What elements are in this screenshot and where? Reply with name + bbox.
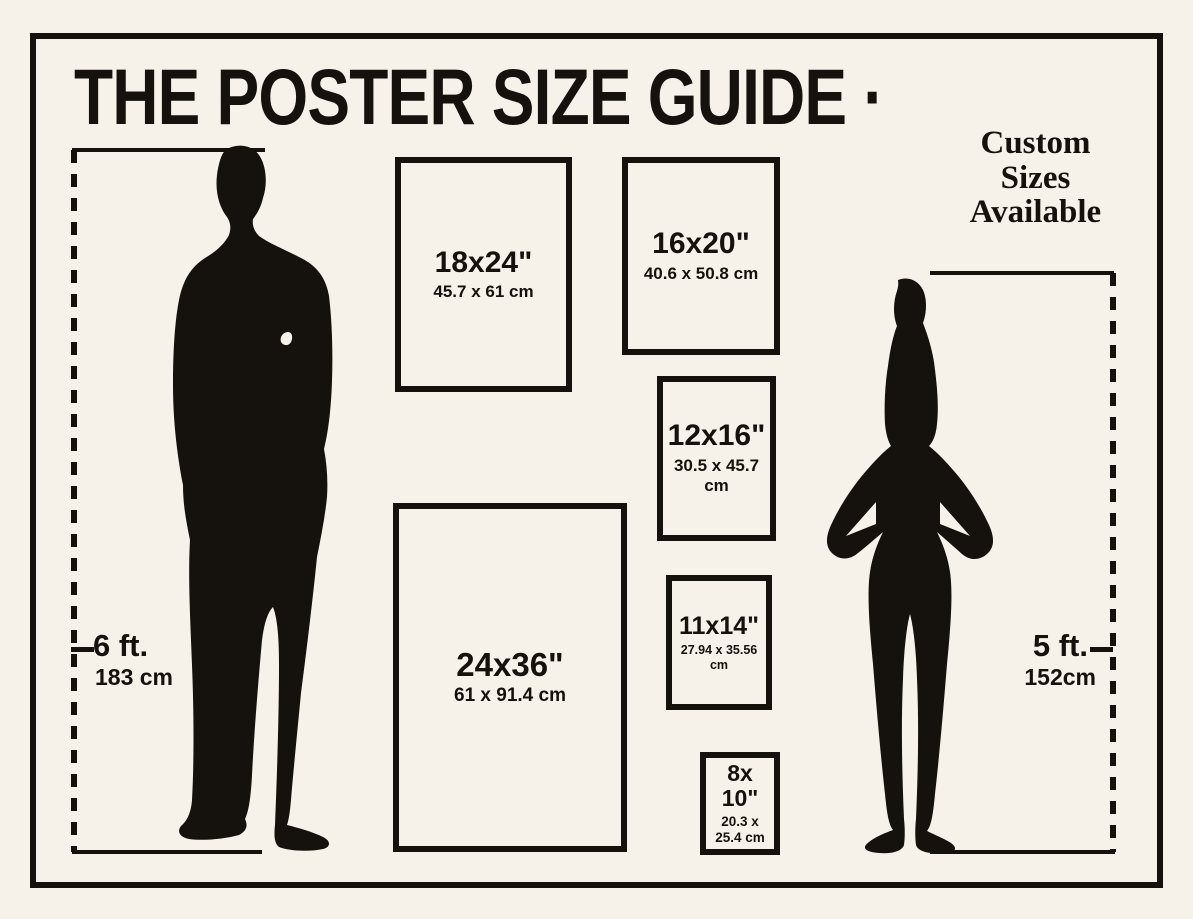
poster-metric-label: 30.5 x 45.7 cm xyxy=(663,456,770,497)
woman-silhouette xyxy=(812,274,1004,854)
poster-box-11x14: 11x14" 27.94 x 35.56 cm xyxy=(666,575,772,710)
poster-size-label: 11x14" xyxy=(679,613,759,640)
poster-metric-label: 27.94 x 35.56 cm xyxy=(672,643,766,673)
poster-size-label: 8x 10" xyxy=(722,761,759,811)
poster-size-label: 24x36" xyxy=(456,647,563,683)
poster-size-label: 18x24" xyxy=(435,247,533,279)
right-height-dashed-line xyxy=(1110,273,1116,852)
poster-box-16x20: 16x20" 40.6 x 50.8 cm xyxy=(622,157,780,355)
woman-silhouette-icon xyxy=(812,274,1004,854)
poster-box-12x16: 12x16" 30.5 x 45.7 cm xyxy=(657,376,776,541)
poster-metric-label: 45.7 x 61 cm xyxy=(433,282,533,302)
poster-box-8x10: 8x 10" 20.3 x 25.4 cm xyxy=(700,752,780,855)
page-title: THE POSTER SIZE GUIDE · xyxy=(74,57,884,136)
poster-metric-label: 20.3 x 25.4 cm xyxy=(715,814,765,846)
poster-size-label: 12x16" xyxy=(668,420,766,452)
left-height-dashed-line xyxy=(71,150,77,852)
poster-metric-label: 61 x 91.4 cm xyxy=(454,685,566,708)
poster-size-label: 16x20" xyxy=(652,228,750,260)
left-height-tick xyxy=(71,647,94,652)
man-silhouette-icon xyxy=(130,143,344,855)
poster-size-guide: THE POSTER SIZE GUIDE · Custom Sizes Ava… xyxy=(0,0,1193,919)
poster-box-18x24: 18x24" 45.7 x 61 cm xyxy=(395,157,572,392)
right-height-tick xyxy=(1090,647,1113,652)
man-silhouette xyxy=(130,143,344,855)
custom-sizes-note: Custom Sizes Available xyxy=(938,126,1133,230)
poster-box-24x36: 24x36" 61 x 91.4 cm xyxy=(393,503,627,852)
poster-metric-label: 40.6 x 50.8 cm xyxy=(644,264,758,284)
